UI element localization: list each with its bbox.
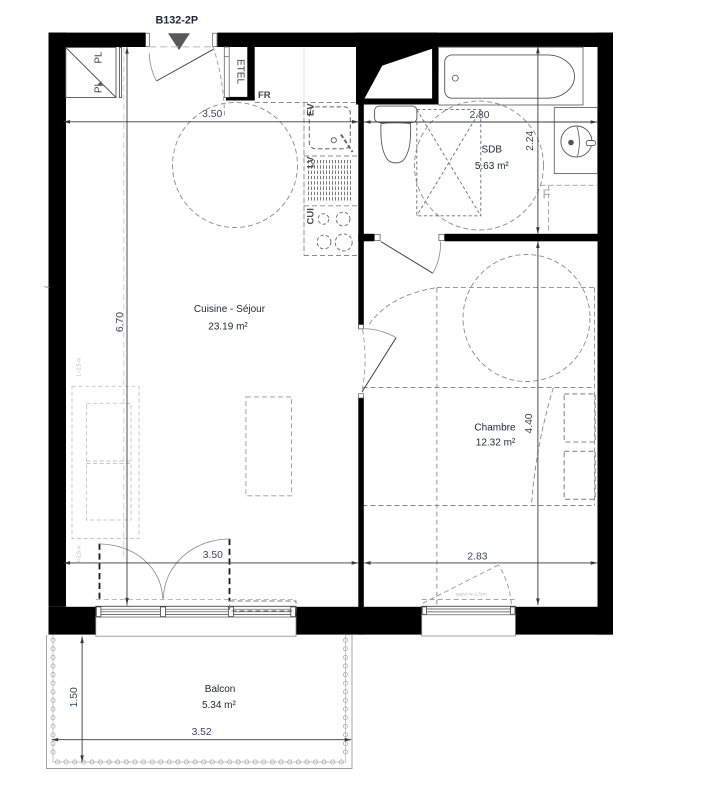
svg-text:PL: PL bbox=[94, 51, 105, 63]
svg-text:Chambre: Chambre bbox=[474, 423, 516, 434]
svg-text:F: F bbox=[543, 187, 551, 202]
svg-text:2.80: 2.80 bbox=[469, 110, 489, 121]
svg-text:23.19 m²: 23.19 m² bbox=[208, 322, 248, 333]
svg-text:CUI: CUI bbox=[306, 208, 317, 224]
svg-text:3.50: 3.50 bbox=[203, 550, 223, 561]
svg-text:6.70: 6.70 bbox=[115, 312, 126, 332]
svg-text:4.40: 4.40 bbox=[524, 413, 535, 433]
svg-text:12.32 m²: 12.32 m² bbox=[476, 438, 516, 449]
svg-text:L=2,5 m: L=2,5 m bbox=[77, 358, 83, 376]
svg-text:3.50: 3.50 bbox=[202, 109, 222, 120]
svg-text:2.24: 2.24 bbox=[525, 131, 536, 151]
svg-text:FR: FR bbox=[258, 90, 271, 101]
svg-text:EV: EV bbox=[306, 103, 317, 116]
svg-text:3.52: 3.52 bbox=[192, 727, 212, 738]
svg-text:5.34 m²: 5.34 m² bbox=[202, 700, 237, 711]
svg-text:SDB: SDB bbox=[482, 145, 503, 156]
svg-text:Balcon: Balcon bbox=[205, 684, 236, 695]
svg-text:ETEL: ETEL bbox=[234, 59, 245, 84]
svg-text:PL: PL bbox=[94, 81, 105, 93]
svg-text:l=2,5 m: l=2,5 m bbox=[77, 545, 83, 562]
svg-text:2.83: 2.83 bbox=[467, 551, 487, 562]
svg-text:5.63 m²: 5.63 m² bbox=[475, 161, 510, 172]
svg-text:LV: LV bbox=[306, 156, 317, 168]
svg-text:Cuisine - Séjour: Cuisine - Séjour bbox=[194, 304, 266, 315]
svg-text:appui m=1,5cm: appui m=1,5cm bbox=[456, 592, 487, 597]
svg-text:B132-2P: B132-2P bbox=[155, 14, 198, 26]
svg-text:1.50: 1.50 bbox=[69, 687, 80, 707]
